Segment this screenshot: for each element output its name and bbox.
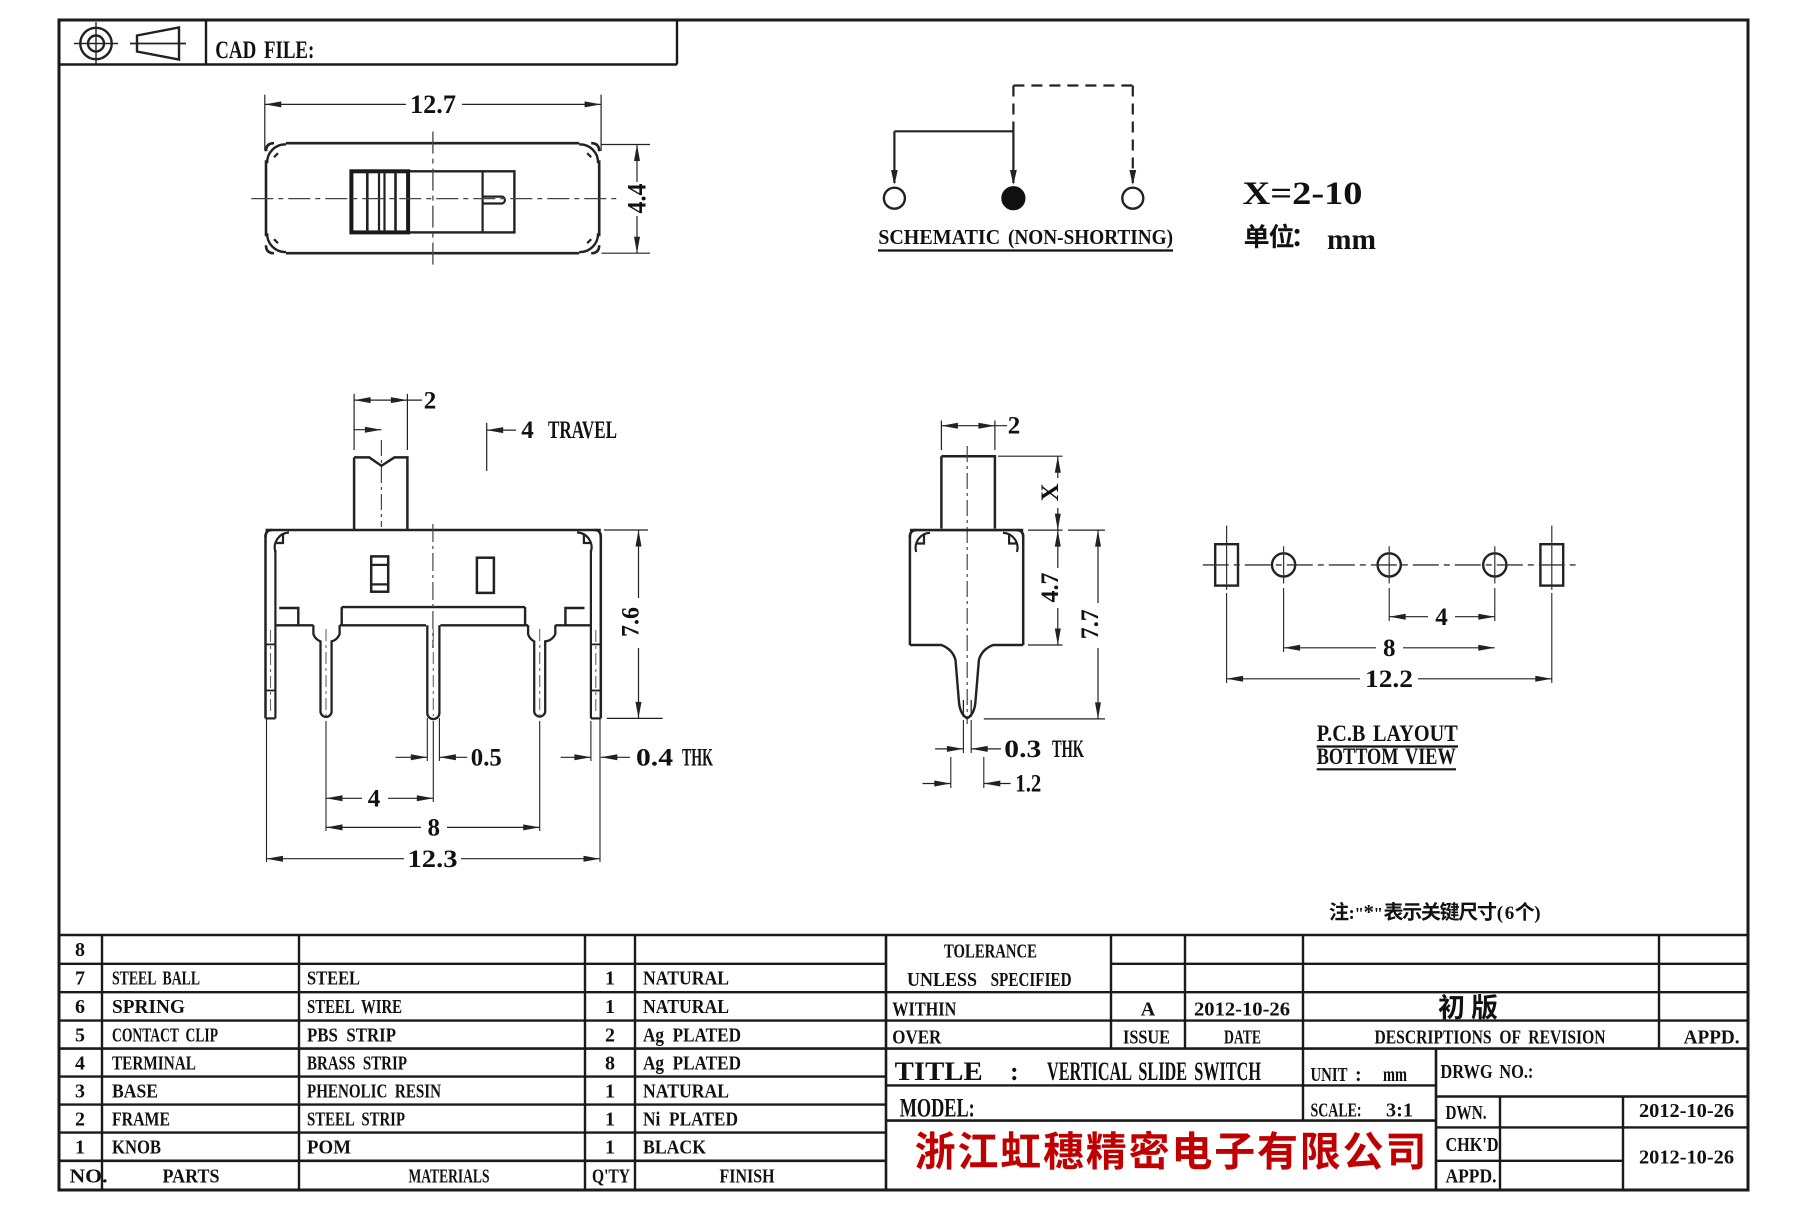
svg-text:X: X [1037,483,1064,501]
svg-text:OVER: OVER [892,1027,941,1049]
svg-text:BRASS STRIP: BRASS STRIP [307,1053,407,1075]
svg-text:DRWG NO.:: DRWG NO.: [1440,1061,1533,1083]
svg-text:3:1: 3:1 [1386,1100,1413,1122]
svg-text:SPRING: SPRING [112,996,185,1018]
svg-text:STEEL: STEEL [307,968,360,990]
svg-text:8: 8 [75,939,85,961]
svg-text:SCALE:: SCALE: [1311,1100,1362,1122]
svg-text:POM: POM [307,1137,351,1159]
svg-text:SPECIFIED: SPECIFIED [991,969,1072,991]
svg-text:4: 4 [368,786,381,813]
svg-text:PARTS: PARTS [163,1165,220,1187]
svg-text:0.5: 0.5 [471,745,502,772]
svg-text:THK: THK [1052,736,1084,763]
svg-text:NO.: NO. [70,1165,108,1187]
svg-text:UNLESS: UNLESS [907,969,977,991]
svg-text:MODEL:: MODEL: [900,1094,975,1123]
svg-text:Ag PLATED: Ag PLATED [643,1025,741,1047]
svg-text:KNOB: KNOB [112,1137,161,1159]
svg-text:BASE: BASE [112,1081,158,1103]
svg-text:Q'TY: Q'TY [592,1165,630,1187]
svg-text:2: 2 [424,388,437,415]
svg-text:2: 2 [75,1109,85,1131]
svg-text:0.3: 0.3 [1004,736,1041,763]
svg-text:8: 8 [428,815,441,842]
svg-text:TRAVEL: TRAVEL [548,417,617,444]
svg-text:PBS STRIP: PBS STRIP [307,1025,396,1047]
svg-text:*: * [1364,900,1375,924]
svg-text:1: 1 [605,996,615,1018]
svg-text:NATURAL: NATURAL [643,1081,729,1103]
svg-text:PHENOLIC RESIN: PHENOLIC RESIN [307,1081,441,1103]
svg-text:2012-10-26: 2012-10-26 [1639,1100,1734,1122]
svg-text:SCHEMATIC: SCHEMATIC [878,225,1000,249]
svg-text:BLACK: BLACK [643,1137,706,1159]
svg-text:": " [1374,904,1383,923]
svg-text:5: 5 [75,1025,85,1047]
svg-text:12.3: 12.3 [408,846,458,873]
svg-text:12.2: 12.2 [1365,666,1413,693]
svg-text:CAD FILE:: CAD FILE: [215,37,314,64]
svg-text:VERTICAL SLIDE SWITCH: VERTICAL SLIDE SWITCH [1047,1057,1261,1086]
svg-text:NATURAL: NATURAL [643,968,729,990]
svg-text:Ag PLATED: Ag PLATED [643,1053,741,1075]
svg-text:4: 4 [75,1053,85,1075]
svg-text:X=2-10: X=2-10 [1243,176,1363,212]
svg-text:4.7: 4.7 [1037,573,1064,603]
svg-text:UNIT: UNIT [1311,1064,1348,1086]
svg-text::: : [1355,1064,1362,1086]
svg-text:WITHIN: WITHIN [892,999,956,1021]
svg-text:Ni PLATED: Ni PLATED [643,1109,738,1131]
svg-text:mm: mm [1327,223,1376,256]
svg-text:NATURAL: NATURAL [643,996,729,1018]
svg-text:DATE: DATE [1224,1027,1261,1049]
svg-text:1: 1 [605,1109,615,1131]
svg-text:TOLERANCE: TOLERANCE [944,941,1037,963]
svg-text:1.2: 1.2 [1015,771,1041,798]
svg-text:8: 8 [605,1053,615,1075]
svg-text:2012-10-26: 2012-10-26 [1639,1147,1734,1169]
svg-text:2: 2 [1008,413,1021,440]
svg-text:BOTTOM VIEW: BOTTOM VIEW [1317,744,1456,769]
svg-text:0.4: 0.4 [636,745,674,772]
svg-text:1: 1 [605,1137,615,1159]
svg-text:1: 1 [75,1137,85,1159]
svg-text:CONTACT CLIP: CONTACT CLIP [112,1025,218,1047]
svg-text:P.C.B LAYOUT: P.C.B LAYOUT [1317,721,1458,746]
svg-text:APPD.: APPD. [1446,1165,1497,1187]
svg-text:): ) [1534,903,1540,924]
svg-text:12.7: 12.7 [410,90,456,119]
svg-text:1: 1 [605,1081,615,1103]
svg-text:2: 2 [605,1025,615,1047]
svg-text:TITLE: TITLE [895,1057,983,1086]
svg-text:4: 4 [1435,604,1448,631]
svg-text:7: 7 [75,968,85,990]
svg-text:TERMINAL: TERMINAL [112,1053,196,1075]
svg-text:FINISH: FINISH [720,1165,775,1187]
svg-text:4.4: 4.4 [623,184,652,214]
svg-text:6: 6 [75,996,85,1018]
svg-text:CHK'D: CHK'D [1446,1134,1499,1156]
svg-text:7.6: 7.6 [618,607,645,637]
svg-text:(: ( [1497,903,1503,924]
svg-text:6: 6 [1505,903,1515,924]
svg-text:STEEL BALL: STEEL BALL [112,968,200,990]
svg-text:THK: THK [682,745,713,772]
svg-text::: : [1010,1057,1019,1086]
svg-text:MATERIALS: MATERIALS [409,1165,490,1187]
svg-text:(NON-SHORTING): (NON-SHORTING) [1008,225,1173,249]
svg-text:A: A [1141,999,1156,1021]
svg-text:STEEL STRIP: STEEL STRIP [307,1109,405,1131]
svg-text:DESCRIPTIONS OF REVISION: DESCRIPTIONS OF REVISION [1375,1027,1606,1049]
svg-text:STEEL WIRE: STEEL WIRE [307,996,402,1018]
svg-text:APPD.: APPD. [1684,1027,1740,1049]
svg-text:3: 3 [75,1081,85,1103]
svg-text:ISSUE: ISSUE [1123,1027,1170,1049]
svg-text:1: 1 [605,968,615,990]
svg-text:8: 8 [1383,635,1396,662]
svg-text:4: 4 [521,417,534,444]
svg-text:2012-10-26: 2012-10-26 [1194,999,1290,1021]
svg-text:7.7: 7.7 [1077,609,1104,639]
svg-text:FRAME: FRAME [112,1109,170,1131]
svg-text:mm: mm [1383,1064,1407,1086]
svg-text:DWN.: DWN. [1446,1102,1487,1124]
